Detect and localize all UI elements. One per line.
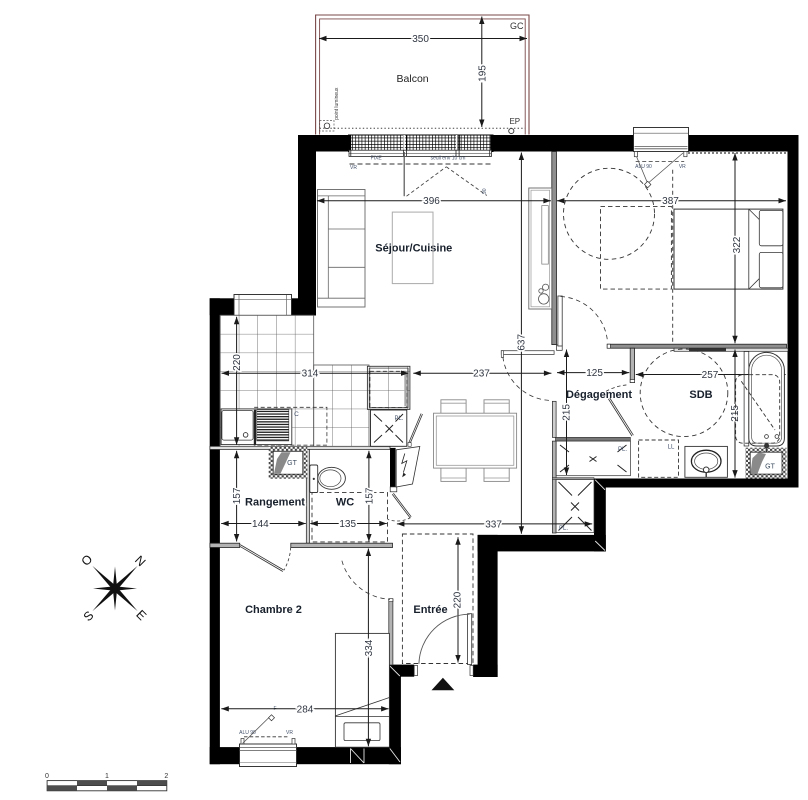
svg-text:GT: GT (765, 464, 775, 471)
svg-text:PL.: PL. (618, 447, 627, 453)
svg-text:220: 220 (453, 591, 464, 608)
svg-text:387: 387 (662, 196, 679, 207)
svg-text:90: 90 (482, 188, 488, 194)
svg-text:195: 195 (477, 65, 488, 82)
svg-text:Rangement: Rangement (245, 497, 305, 509)
svg-text:EP: EP (509, 117, 520, 126)
svg-text:seuil env 10 cm: seuil env 10 cm (431, 156, 466, 162)
svg-text:215: 215 (561, 404, 572, 421)
svg-text:VR: VR (286, 730, 293, 736)
svg-text:284: 284 (297, 704, 314, 715)
svg-text:144: 144 (252, 519, 269, 530)
svg-text:Chambre 2: Chambre 2 (245, 604, 302, 616)
svg-text:Dégagement: Dégagement (566, 389, 632, 401)
svg-text:396: 396 (423, 196, 440, 207)
svg-text:C: C (294, 411, 299, 418)
svg-text:157: 157 (364, 487, 375, 504)
svg-text:337: 337 (485, 519, 502, 530)
svg-text:257: 257 (702, 370, 719, 381)
svg-text:220: 220 (232, 354, 243, 371)
svg-text:157: 157 (232, 487, 243, 504)
svg-text:ALU 90: ALU 90 (635, 164, 652, 170)
svg-text:350: 350 (412, 34, 429, 45)
svg-text:637: 637 (516, 334, 527, 351)
svg-text:2: 2 (164, 773, 168, 780)
svg-text:322: 322 (732, 236, 743, 253)
svg-text:PL.: PL. (394, 416, 403, 422)
svg-text:125: 125 (586, 368, 603, 379)
svg-text:Séjour/Cuisine: Séjour/Cuisine (375, 243, 452, 255)
svg-text:VR: VR (350, 165, 357, 171)
svg-text:VR: VR (679, 164, 686, 170)
svg-text:334: 334 (364, 639, 375, 656)
svg-text:FIXE: FIXE (371, 156, 383, 162)
svg-text:PL.: PL. (559, 526, 568, 532)
svg-text:314: 314 (302, 369, 319, 380)
svg-text:GC: GC (510, 21, 524, 31)
svg-text:GT: GT (287, 460, 297, 467)
svg-text:LL: LL (668, 445, 675, 451)
svg-text:135: 135 (339, 519, 356, 530)
svg-text:0: 0 (45, 773, 49, 780)
svg-text:Entrée: Entrée (413, 604, 447, 616)
svg-text:WC: WC (336, 497, 354, 509)
svg-text:237: 237 (473, 369, 490, 380)
svg-text:1: 1 (105, 773, 109, 780)
svg-text:point lumineux: point lumineux (334, 87, 340, 120)
svg-text:Balcon: Balcon (397, 73, 429, 85)
svg-text:SDB: SDB (689, 389, 712, 401)
